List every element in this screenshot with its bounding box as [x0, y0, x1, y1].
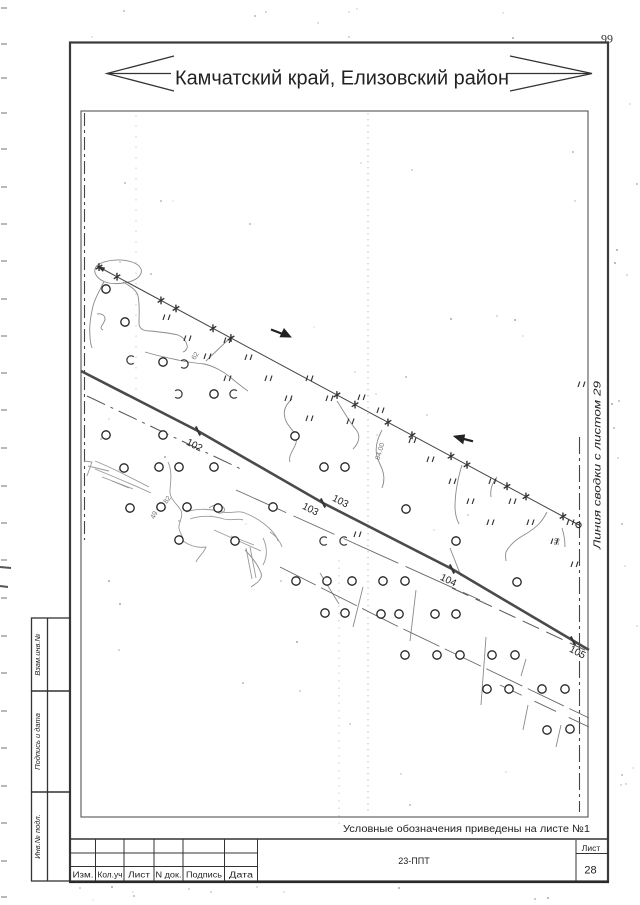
- svg-text:Кол.уч: Кол.уч: [98, 871, 123, 880]
- svg-text:Условные обозначения приведены: Условные обозначения приведены на листе …: [343, 823, 590, 835]
- svg-text:Лист: Лист: [128, 871, 150, 880]
- svg-text:Подпись: Подпись: [186, 871, 222, 880]
- svg-text:Лист: Лист: [582, 843, 601, 853]
- svg-text:23-ППТ: 23-ППТ: [398, 856, 430, 866]
- svg-text:N док.: N док.: [156, 871, 182, 880]
- svg-text:28: 28: [584, 865, 596, 877]
- svg-text:Взам.инв.№: Взам.инв.№: [33, 633, 42, 675]
- svg-text:Линия сводки с листом 29: Линия сводки с листом 29: [593, 380, 604, 550]
- svg-text:Камчатский край, Елизовский ра: Камчатский край, Елизовский район: [175, 67, 509, 90]
- svg-text:Подпись и дата: Подпись и дата: [33, 713, 42, 770]
- svg-text:Изм.: Изм.: [73, 871, 94, 880]
- svg-text:Инв.№ подл.: Инв.№ подл.: [33, 814, 42, 858]
- svg-text:Дата: Дата: [229, 871, 254, 880]
